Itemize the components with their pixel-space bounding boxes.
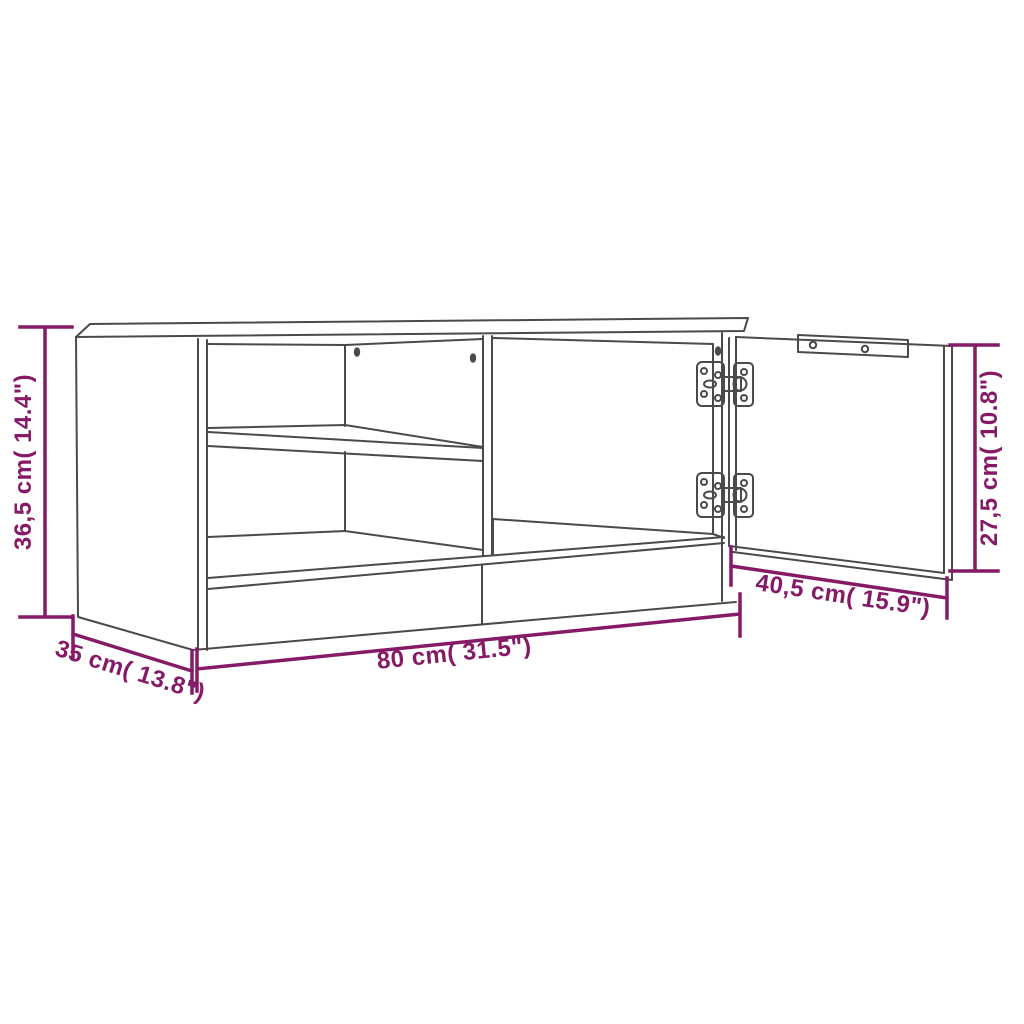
left-compartment-top-junction [208,339,483,345]
dim-label-door-width: 40,5 cm( 15.9") [754,569,932,622]
door-panel [729,335,952,580]
screw-hole-icon [715,346,721,356]
center-divider [483,336,492,556]
dim-label-overall-width: 80 cm( 31.5") [376,632,533,675]
hinge-bottom-icon [697,473,753,517]
dimension-labels: 36,5 cm( 14.4") 27,5 cm( 10.8") 80 cm( 3… [10,370,1003,707]
left-inner-wall-front-edge [198,339,207,650]
screw-hole-icon [470,353,476,363]
dim-label-door-height: 27,5 cm( 10.8") [976,370,1003,546]
left-side-panel [76,337,193,650]
bracket-screw-icon [862,346,868,352]
right-compartment-floor [493,519,724,554]
screw-hole-icon [354,347,360,357]
diagram-svg: 36,5 cm( 14.4") 27,5 cm( 10.8") 80 cm( 3… [0,0,1024,1024]
right-compartment-top-junction [493,338,713,344]
door-top-edge [736,337,952,346]
product-dimension-diagram: 36,5 cm( 14.4") 27,5 cm( 10.8") 80 cm( 3… [0,0,1024,1024]
back-panel-screw-holes [354,346,721,363]
door-mounting-bracket [798,335,908,357]
dim-label-depth: 35 cm( 13.8") [52,635,208,707]
bottom-panel-front-edge [208,537,724,589]
door-right-edge [944,346,952,580]
bracket-screw-icon [810,342,816,348]
hinge-top-icon [697,362,753,406]
top-panel [76,318,748,337]
dim-label-overall-height: 36,5 cm( 14.4") [10,374,37,550]
left-compartment-floor [208,531,483,550]
